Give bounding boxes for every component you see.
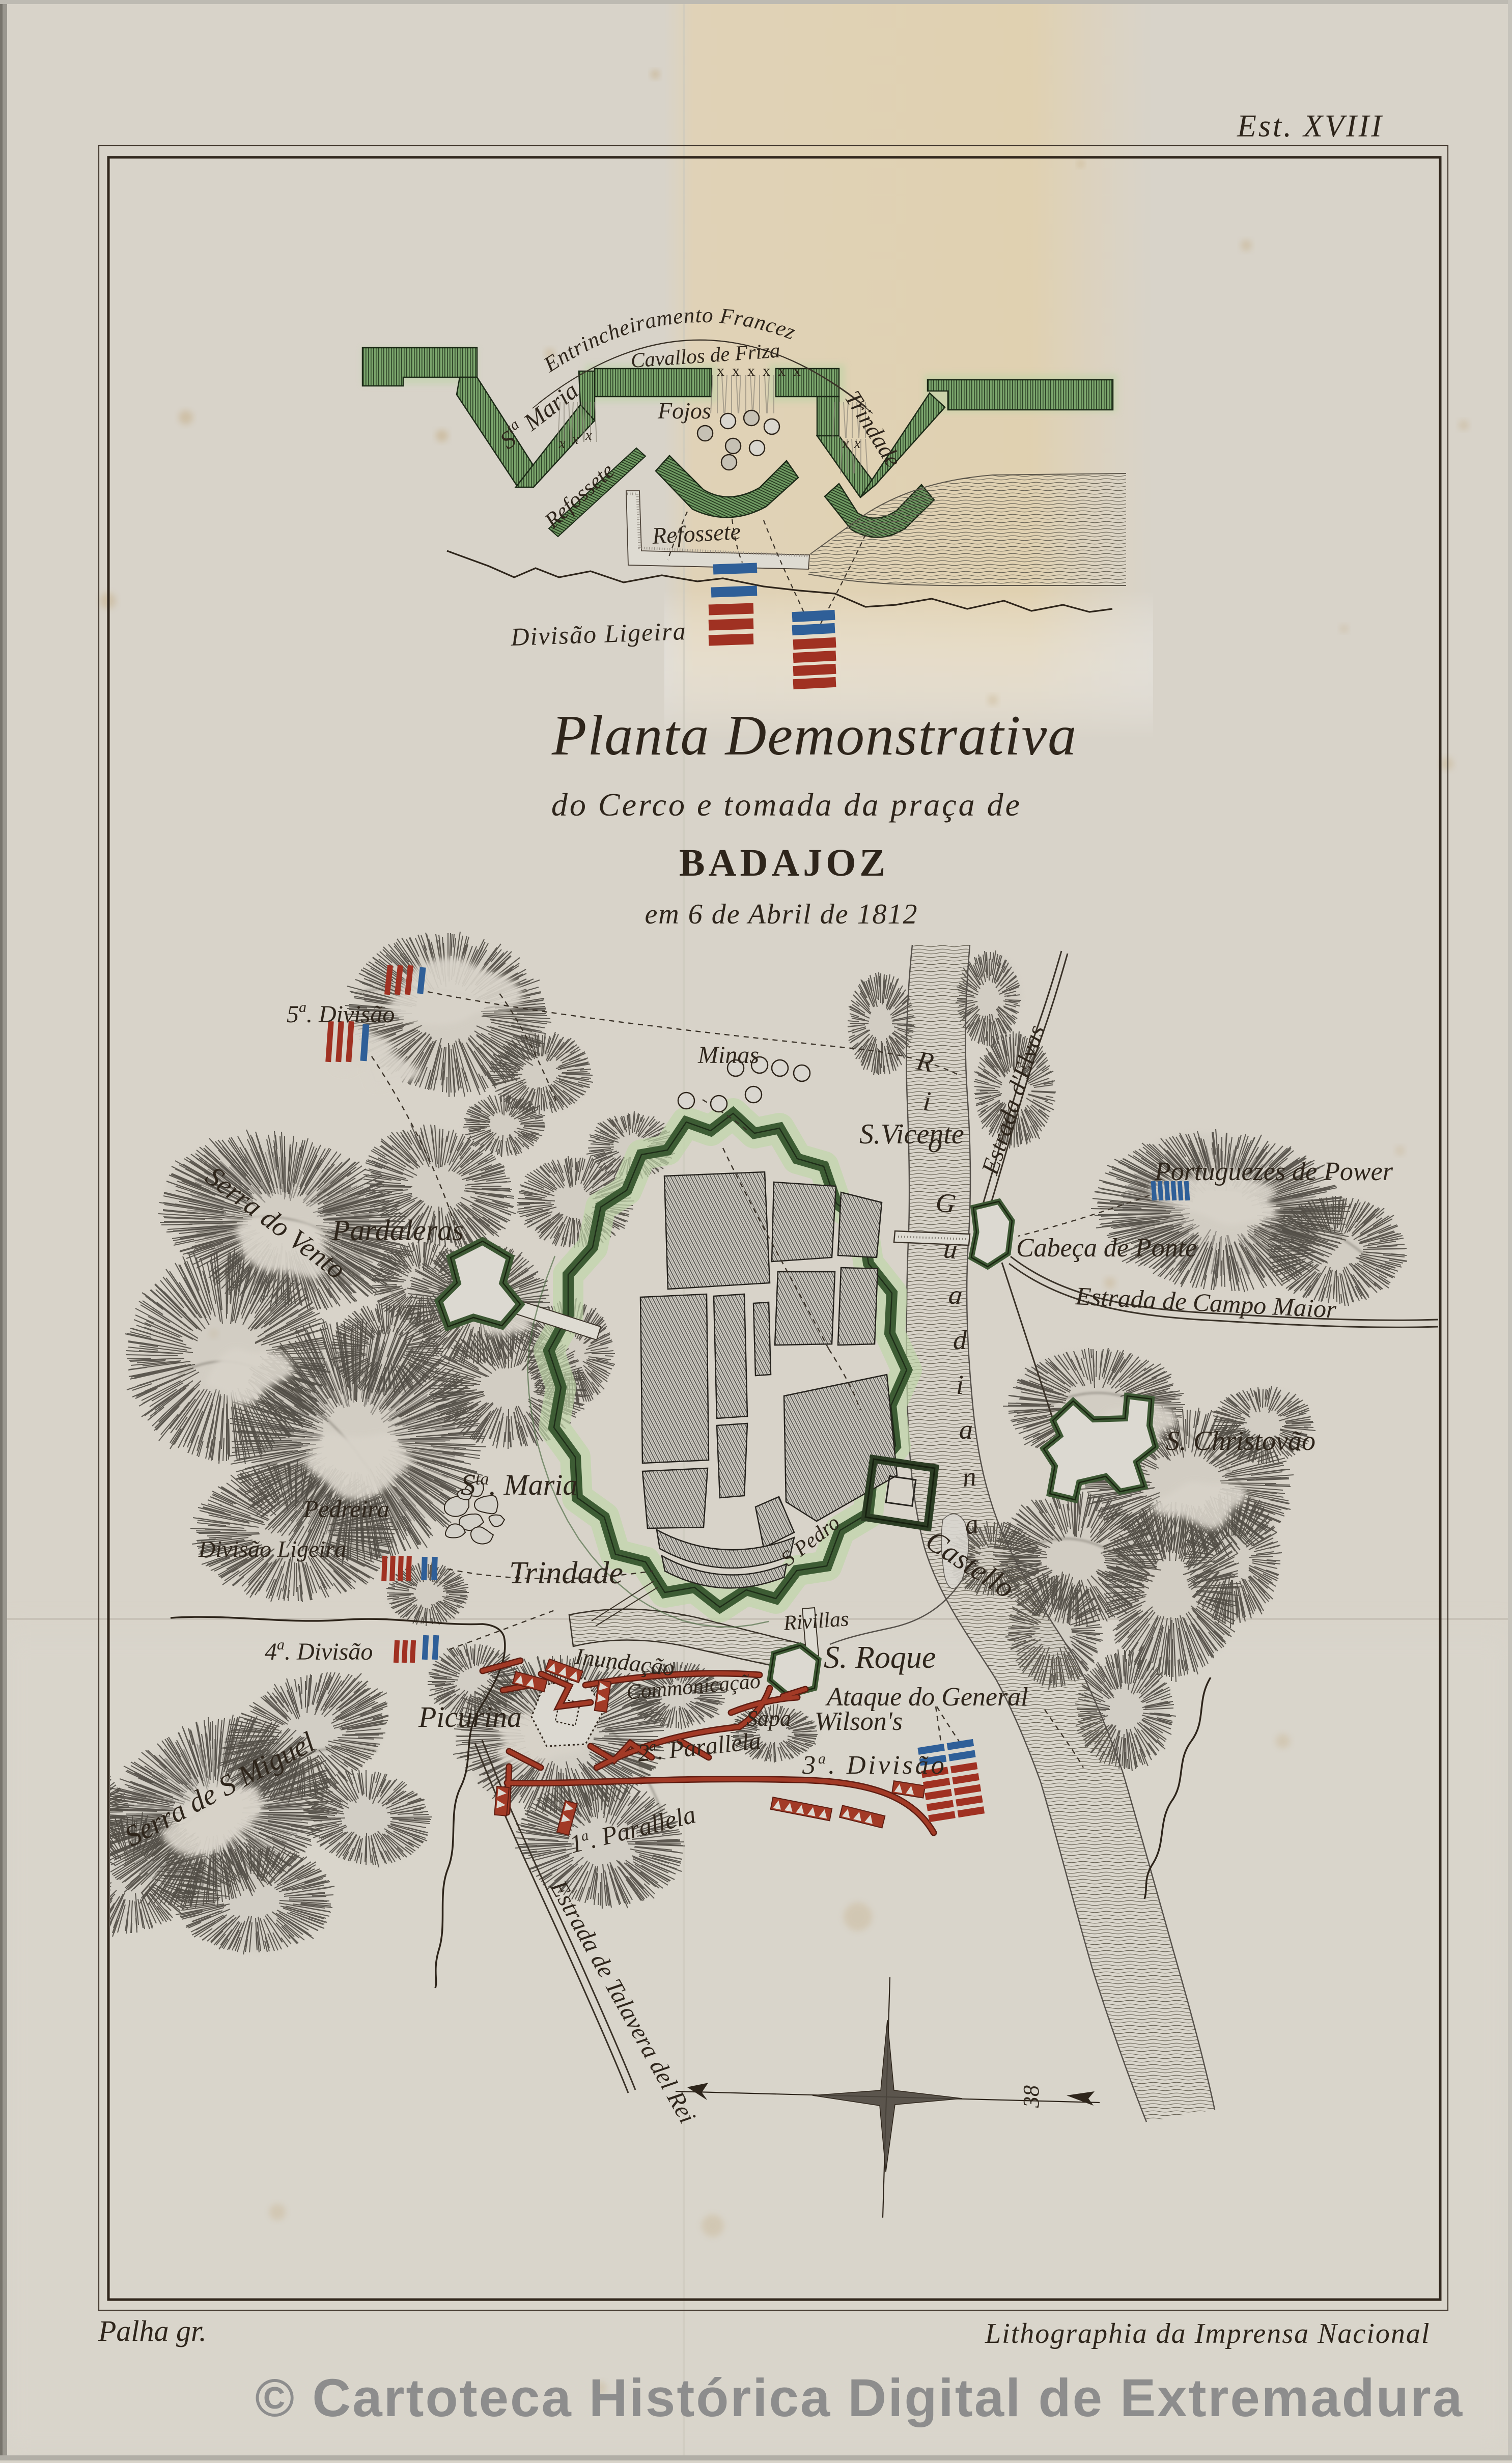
svg-text:Cabeça de Ponte: Cabeça de Ponte [1016, 1234, 1197, 1263]
svg-text:x: x [585, 428, 592, 443]
svg-text:Est. XVIII: Est. XVIII [1237, 109, 1384, 144]
svg-text:Minas: Minas [697, 1042, 759, 1069]
svg-text:Pedreira: Pedreira [303, 1496, 389, 1523]
svg-text:a: a [947, 1279, 964, 1310]
svg-text:u: u [942, 1233, 959, 1265]
svg-text:Fojos: Fojos [657, 398, 711, 424]
svg-text:Sapa: Sapa [746, 1706, 791, 1731]
svg-text:Rivillas: Rivillas [782, 1607, 849, 1635]
svg-text:S. Roque: S. Roque [824, 1640, 936, 1675]
svg-text:Portuguezes de Power: Portuguezes de Power [1154, 1157, 1393, 1186]
svg-text:x: x [778, 362, 786, 379]
svg-text:x: x [842, 436, 849, 452]
svg-text:Lithographia da Imprensa Nacio: Lithographia da Imprensa Nacional [985, 2318, 1430, 2349]
svg-text:n: n [961, 1461, 977, 1493]
svg-text:x: x [572, 432, 579, 447]
svg-text:do Cerco e tomada da praça de: do Cerco e tomada da praça de [551, 787, 1022, 823]
svg-text:d: d [953, 1325, 967, 1355]
svg-text:em 6 de Abril de 1812: em 6 de Abril de 1812 [645, 899, 918, 930]
svg-text:© Cartoteca Histórica Digital: © Cartoteca Histórica Digital de Extrema… [255, 2368, 1464, 2428]
svg-text:Planta Demonstrativa: Planta Demonstrativa [551, 704, 1077, 767]
svg-text:Picurina: Picurina [418, 1700, 522, 1733]
svg-text:x: x [793, 362, 801, 379]
svg-text:S.Vicente: S.Vicente [859, 1118, 964, 1150]
svg-text:i: i [956, 1369, 964, 1400]
svg-text:Divisão Ligeira: Divisão Ligeira [198, 1536, 346, 1562]
svg-text:Trindade: Trindade [509, 1556, 623, 1590]
svg-text:Pardaleras: Pardaleras [331, 1214, 464, 1247]
svg-text:x: x [747, 362, 755, 379]
svg-text:Wilson's: Wilson's [815, 1707, 903, 1736]
svg-text:x: x [558, 436, 566, 452]
svg-text:Palha gr.: Palha gr. [98, 2314, 207, 2347]
svg-text:38: 38 [1019, 2085, 1044, 2108]
svg-text:a: a [959, 1414, 973, 1445]
svg-text:S. Christovão: S. Christovão [1166, 1425, 1315, 1456]
svg-text:x: x [854, 436, 861, 452]
svg-text:G: G [934, 1186, 958, 1219]
svg-text:o: o [927, 1127, 943, 1159]
svg-text:x: x [763, 362, 770, 379]
svg-text:BADAJOZ: BADAJOZ [679, 842, 889, 884]
svg-text:Refossete: Refossete [651, 518, 741, 549]
